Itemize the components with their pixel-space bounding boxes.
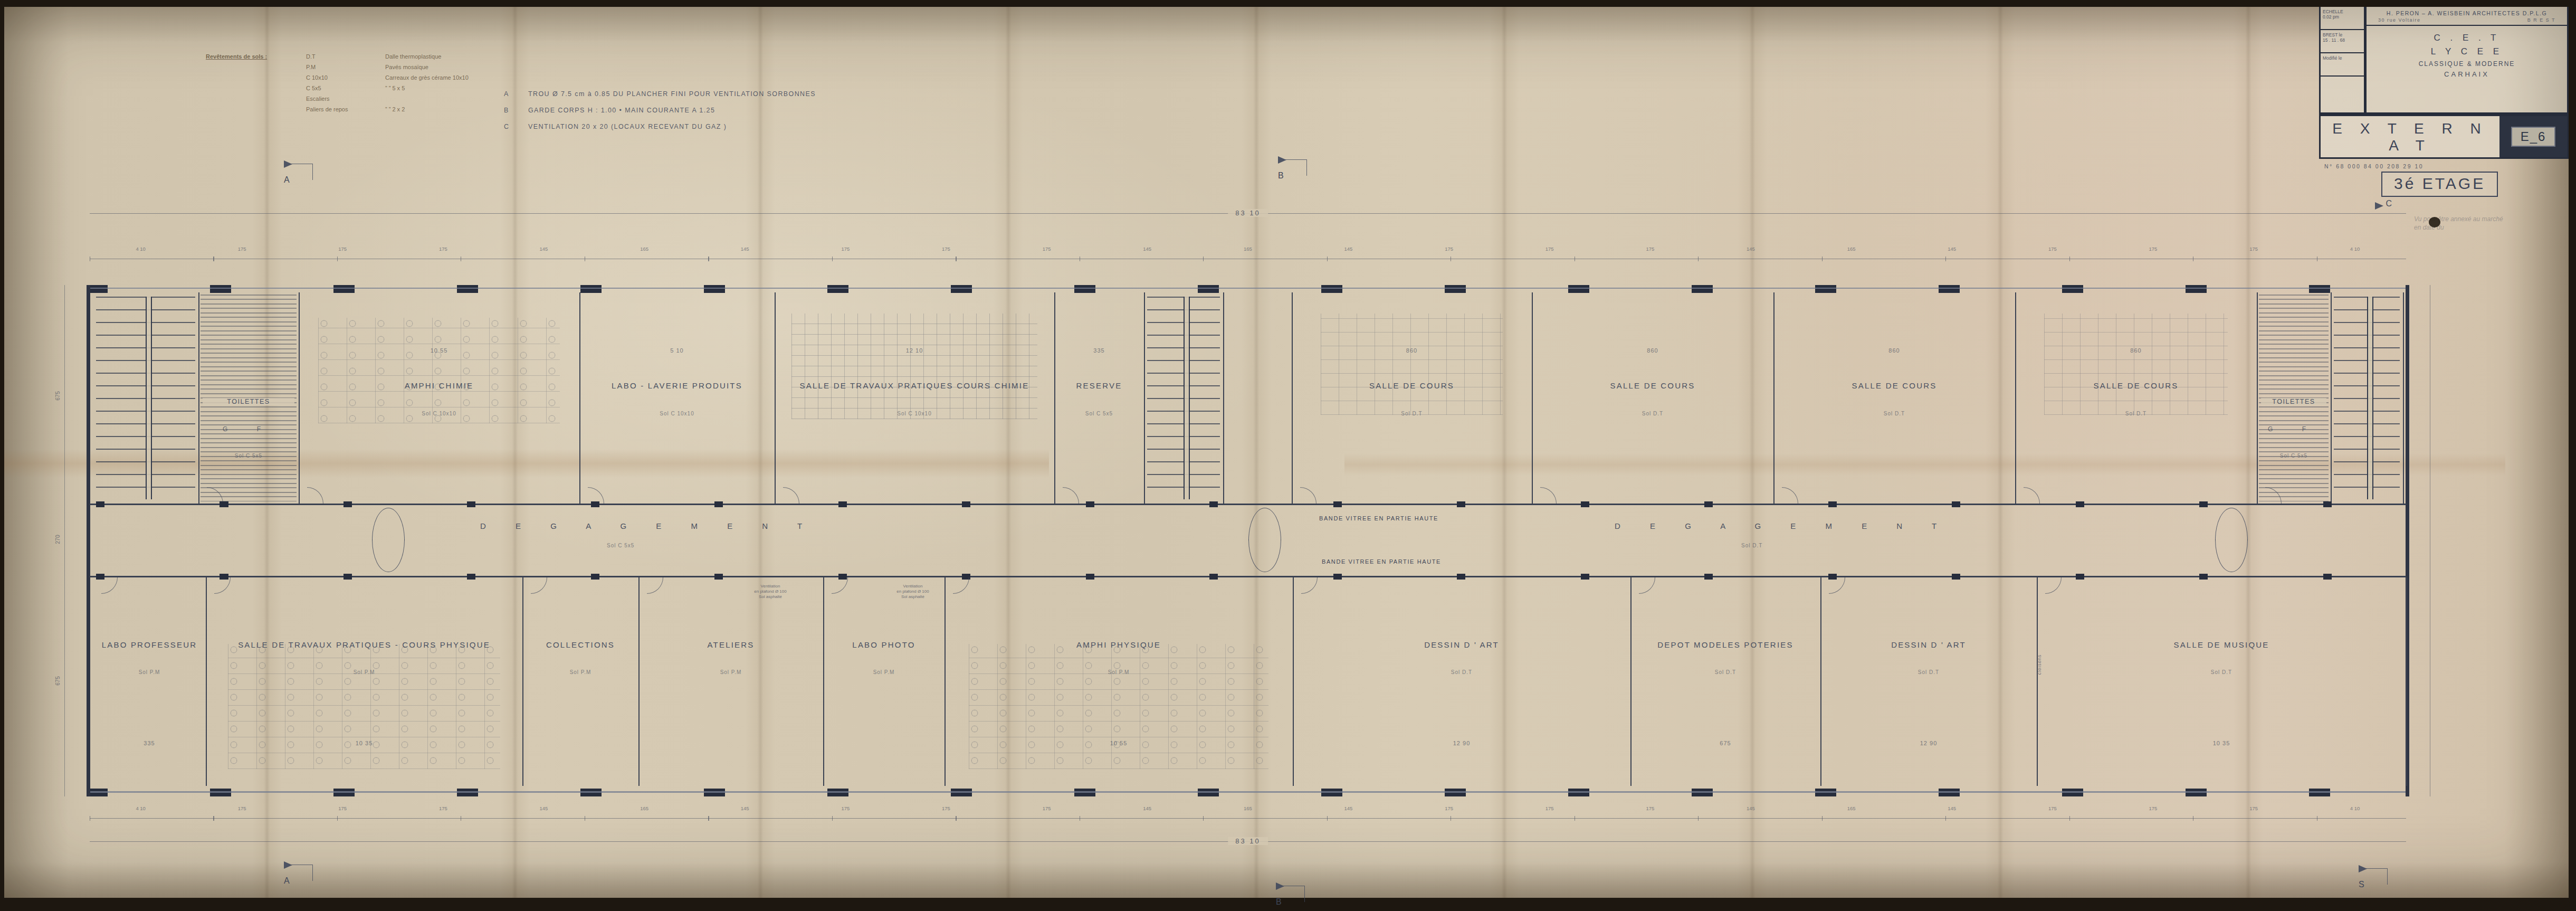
room-ateliers: ATELIERSSol P.M [638,577,824,786]
corridor-floor-finish: Sol D.T [1741,543,1762,548]
note-key: B [504,107,528,114]
ventilation-note: Ventilationen plafond Ø 100Sol asphalté [739,584,802,600]
ventilation-note: Ventilationen plafond Ø 100Sol asphalté [881,584,944,600]
floor-finish-label: Sol P.M [93,669,206,675]
legend-code: C 10x10 [306,72,385,83]
room-label: SALLE DE MUSIQUE [2037,640,2406,649]
double-door-symbol [372,508,405,572]
dimension-number: 165 [1244,246,1252,252]
legend-title-cell [206,62,306,72]
room-dimension: 860 [2015,347,2257,354]
note-key: C [504,123,528,130]
drawing-code-box: E_6 [2499,116,2567,157]
corridor-columns [90,501,2406,507]
document-name-row: E X T E R N A T E_6 [2319,114,2569,159]
north-room-band: TOILETTESG FSol C 5x510 55AMPHI CHIMIESo… [90,292,2406,504]
legend-title-cell [206,83,306,93]
staircase-symbol [96,297,195,499]
overall-dimension-value: 83 10 [1228,837,1268,845]
corridor-label-east: D E G A G E M E N T [1615,521,1950,530]
dimension-number: 165 [640,805,648,811]
floor-finish-label: Sol D.T [1532,411,1773,416]
photo-of-architectural-drawing: Revêtements de sols :D.TDalle thermoplas… [0,0,2576,911]
project-line: CARHAIX [2367,69,2567,80]
dimension-number: 145 [1948,246,1956,252]
project-line: C . E . T [2367,31,2567,45]
dimension-number: 175 [841,246,850,252]
room-label: AMPHI PHYSIQUE [944,640,1293,649]
room-label: SALLE DE COURS [1292,381,1532,390]
exterior-wall-north [87,285,2409,293]
section-marker-s: S [2359,865,2390,889]
dimension-number: 145 [741,805,749,811]
double-door-symbol [2215,508,2248,572]
room-dimension: 10 55 [944,740,1293,746]
room-label: DEPOT MODELES POTERIES [1630,640,1820,649]
staircase-symbol [2334,297,2400,499]
room-amphi-physique: 10 55AMPHI PHYSIQUESol P.M [944,577,1294,786]
dimension-number: 175 [1043,246,1051,252]
room-label: ATELIERS [638,640,823,649]
room-labo-professeur: 335LABO PROFESSEURSol P.M [93,577,207,786]
dimension-number: 145 [1143,246,1151,252]
room-labo-photo: LABO PHOTOSol P.M [823,577,946,786]
dimension-number: 175 [238,246,246,252]
project-line: L Y C E E [2367,45,2567,59]
room-dimension: 10 35 [206,740,522,746]
room-dimension: 675 [1630,740,1820,746]
project-title: C . E . T L Y C E E CLASSIQUE & MODERNE … [2367,26,2567,86]
modified-label: Modifié le [2323,55,2362,61]
room-dimension: 10 35 [2037,740,2406,746]
dimension-number: 175 [1545,246,1554,252]
room-salle-de-cours: 860SALLE DE COURSSol D.T [1532,292,1774,504]
dimension-number: 4 10 [136,805,146,811]
dimension-number: 175 [439,246,447,252]
dimension-number: 175 [942,805,950,811]
legend-code: P.M [306,62,385,72]
double-door-symbol [1248,508,1281,572]
dimension-number: 175 [841,805,850,811]
furniture-symbols [969,644,1268,769]
floor-finish-label: Sol D.T [1292,411,1532,416]
dimension-number: 4 10 [2350,246,2360,252]
note-text: TROU Ø 7.5 cm à 0.85 DU PLANCHER FINI PO… [528,90,816,98]
room-label: SALLE DE COURS [1773,381,2015,390]
date-label: BREST le [2323,32,2362,37]
dimension-number: 165 [1847,805,1856,811]
dimension-number: 175 [1445,246,1453,252]
room-dimension: 10 55 [299,347,579,354]
date-cell: BREST le 15 . 11 . 68 [2321,30,2364,53]
room-label: RESERVE [1054,381,1144,390]
dimension-number: 175 [942,246,950,252]
room-label: SALLE DE TRAVAUX PRATIQUES - COURS PHYSI… [206,640,522,649]
note-key: A [504,90,528,98]
dimension-number: 165 [1244,805,1252,811]
dimension-number: 175 [1646,246,1654,252]
glazed-band-note: BANDE VITREE EN PARTIE HAUTE [1319,515,1438,521]
room-label: AMPHI CHIMIE [299,381,579,390]
room-label: SALLE DE COURS [2015,381,2257,390]
floor-finish-label: Sol C 5x5 [198,453,299,459]
room-toilettes: TOILETTESG FSol C 5x5 [2257,292,2332,504]
note-text: VENTILATION 20 x 20 (LOCAUX RECEVANT DU … [528,123,727,130]
floor-finish-label: Sol P.M [522,669,638,675]
note-b: BGARDE CORPS H : 1.00 • MAIN COURANTE A … [504,107,816,114]
dimension-number: 175 [238,805,246,811]
dimension-number: 165 [640,246,648,252]
document-name: E X T E R N A T [2321,116,2499,157]
dimension-number: 145 [540,805,548,811]
vertical-dimension: 675 [54,391,61,401]
room-dimension: 12 10 [775,347,1054,354]
room-dimension: 5 10 [579,347,775,354]
room-amphi-chimie: 10 55AMPHI CHIMIESol C 10x10 [299,292,580,504]
legend-code: Paliers de repos [306,104,385,115]
empty-cell [2321,77,2364,112]
floor-finish-label: Sol D.T [1293,669,1630,675]
legend-code: Escaliers [306,93,385,104]
south-room-band: 335LABO PROFESSEURSol P.M10 35SALLE DE T… [90,577,2406,786]
vertical-dimension-chain [2430,285,2430,796]
room-label: SALLE DE COURS [1532,381,1773,390]
partition-label: cloisons [2037,654,2042,675]
room-hall [1223,292,1293,504]
architects-row: H. PERON – A. WEISBEIN ARCHITECTES D.P.L… [2367,7,2567,26]
legend-title-cell: Revêtements de sols : [206,51,306,62]
room-stairs [1144,292,1224,504]
legend-code: D.T [306,51,385,62]
room-label: SALLE DE TRAVAUX PRATIQUES COURS CHIMIE [775,381,1054,390]
architects-address: 30 rue Voltaire [2378,17,2421,23]
room-label: TOILETTES [2261,398,2326,405]
dimension-number: 175 [2048,805,2057,811]
dimension-number: 145 [1344,246,1353,252]
legend-desc: Dalle thermoplastique [385,51,607,62]
floor-finish-label: Sol P.M [944,669,1293,675]
section-marker-b: B [1278,156,1310,181]
exterior-wall-south [87,789,2409,796]
dimension-number: 145 [1143,805,1151,811]
room-dimension: 12 90 [1293,740,1630,746]
legend-row: Revêtements de sols :D.TDalle thermoplas… [206,51,607,62]
title-block-main: H. PERON – A. WEISBEIN ARCHITECTES D.P.L… [2367,7,2567,112]
floor-finish-label: Sol C 5x5 [2257,453,2331,459]
corridor: D E G A G E M E N T Sol C 5x5 D E G A G … [90,504,2406,577]
scale-cell: ECHELLE 0.02 pm [2321,7,2364,30]
room-collections: COLLECTIONSSol P.M [522,577,640,786]
room-salle-de-travaux-pratiques-cours-chimie: 12 10SALLE DE TRAVAUX PRATIQUES COURS CH… [775,292,1055,504]
room-salle-de-cours: 860SALLE DE COURSSol D.T [1773,292,2016,504]
floor-finish-label: Sol D.T [2015,411,2257,416]
section-leader-line [1283,886,1305,902]
furniture-symbols [1321,314,1503,415]
room-dessin-d-art: 12 90DESSIN D ' ARTSol D.T [1293,577,1632,786]
legend-code: C 5x5 [306,83,385,93]
room-stairs [2331,292,2404,504]
room-label: DESSIN D ' ART [1820,640,2037,649]
overall-dimension-bottom: 83 10 [90,841,2406,842]
title-block: ECHELLE 0.02 pm BREST le 15 . 11 . 68 Mo… [2319,7,2569,232]
room-sublabel: G F [198,425,299,433]
room-dimension: 335 [93,740,206,746]
legend-title-cell [206,72,306,83]
floor-finish-label: Sol C 10x10 [775,411,1054,416]
general-notes: ATROU Ø 7.5 cm à 0.85 DU PLANCHER FINI P… [504,90,816,139]
project-line: CLASSIQUE & MODERNE [2367,59,2567,69]
corridor-label-west: D E G A G E M E N T [480,521,816,530]
title-block-grid: ECHELLE 0.02 pm BREST le 15 . 11 . 68 Mo… [2319,7,2569,114]
floor-finish-label: Sol D.T [1820,669,2037,675]
glazed-band-note: BANDE VITREE EN PARTIE HAUTE [1322,558,1441,565]
section-leader-line [1285,159,1307,176]
floor-finish-label: Sol P.M [638,669,823,675]
punch-hole [2429,217,2440,227]
floor-finish-label: Sol P.M [823,669,944,675]
dimension-number: 4 10 [2350,805,2360,811]
reference-number: N° 68 000 84 00 208 29 10 [2324,163,2569,169]
room-label: COLLECTIONS [522,640,638,649]
dimension-number: 175 [1043,805,1051,811]
dimension-number: 175 [2149,246,2158,252]
dimension-number: 145 [1747,246,1755,252]
room-stairs [93,292,199,504]
room-label: LABO PROFESSEUR [93,640,206,649]
corridor-floor-finish: Sol C 5x5 [607,543,634,548]
dimension-number: 175 [1545,805,1554,811]
dimension-number: 145 [1948,805,1956,811]
drawing-code: E_6 [2511,127,2556,147]
dimension-ticks-bottom: 4 10175175175145165145175175175145165145… [90,805,2406,811]
dimension-chain-bottom [90,816,2406,821]
floor-finish-label: Sol C 10x10 [579,411,775,416]
section-flag-icon [2375,202,2383,210]
furniture-symbols [318,318,560,423]
floor-finish-label: Sol P.M [206,669,522,675]
room-label: LABO - LAVERIE PRODUITS [579,381,775,390]
floor-title: 3é ETAGE [2381,172,2498,197]
floor-finish-label: Sol D.T [1773,411,2015,416]
overall-dimension-value: 83 10 [1228,209,1268,217]
room-dimension: 860 [1532,347,1773,354]
staircase-symbol [1147,297,1220,499]
dimension-number: 175 [1646,805,1654,811]
dimension-number: 175 [2249,246,2258,252]
overall-dimension-top: 83 10 [90,213,2406,214]
furniture-symbols [791,314,1037,419]
modified-cell: Modifié le [2321,53,2364,77]
date-value: 15 . 11 . 68 [2323,37,2362,43]
room-depot-modeles-poteries: 675DEPOT MODELES POTERIESSol D.T [1630,577,1821,786]
vertical-dimension-chain [64,285,65,796]
room-dessin-d-art: 12 90DESSIN D ' ARTSol D.T [1820,577,2038,786]
room-dimension: 860 [1773,347,2015,354]
dimension-number: 145 [1747,805,1755,811]
dimension-number: 4 10 [136,246,146,252]
room-sublabel: G F [2257,425,2331,433]
dimension-chain-top [90,257,2406,261]
vertical-dimension: 675 [54,676,61,686]
section-leader-line [291,164,313,180]
dimension-number: 175 [2249,805,2258,811]
note-a: ATROU Ø 7.5 cm à 0.85 DU PLANCHER FINI P… [504,90,816,98]
floor-finish-label: Sol D.T [1630,669,1820,675]
dimension-number: 145 [741,246,749,252]
legend-desc: Pavés mosaïque [385,62,607,72]
floor-finish-label: Sol D.T [2037,669,2406,675]
legend-desc: Carreaux de grès cérame 10x10 [385,72,607,83]
scale-value: 0.02 pm [2323,14,2362,20]
legend-title-cell [206,93,306,104]
room-salle-de-musique: 10 35SALLE DE MUSIQUESol D.T [2037,577,2407,786]
section-marker-a: A [284,160,316,185]
room-dimension: 335 [1054,347,1144,354]
floor-plan: 83 10 4 10175175175145165145175175175145… [90,292,2406,791]
furniture-symbols [2044,314,2228,415]
section-marker-c: C [2375,199,2569,212]
architects-city: B R E S T [2527,17,2555,23]
dimension-number: 175 [2149,805,2158,811]
legend-title-cell [206,104,306,115]
dimension-number: 175 [338,246,347,252]
dimension-number: 175 [439,805,447,811]
room-reserve: 335RESERVESol C 5x5 [1054,292,1145,504]
dimension-number: 145 [540,246,548,252]
room-dimension: 12 90 [1820,740,2037,746]
floor-finish-label: Sol C 5x5 [1054,411,1144,416]
room-salle-de-cours: 860SALLE DE COURSSol D.T [1292,292,1533,504]
room-labo-laverie-produits: 5 10LABO - LAVERIE PRODUITSSol C 10x10 [579,292,776,504]
room-toilettes: TOILETTESG FSol C 5x5 [198,292,300,504]
dimension-number: 175 [338,805,347,811]
title-block-meta-column: ECHELLE 0.02 pm BREST le 15 . 11 . 68 Mo… [2321,7,2367,112]
dimension-number: 175 [1445,805,1453,811]
architects-names: H. PERON – A. WEISBEIN ARCHITECTES D.P.L… [2371,10,2563,16]
room-label: TOILETTES [203,398,294,405]
dimension-number: 165 [1847,246,1856,252]
vertical-dimension: 270 [54,535,61,544]
room-salle-de-cours: 860SALLE DE COURSSol D.T [2015,292,2258,504]
floor-finish-label: Sol C 10x10 [299,411,579,416]
room-dimension: 860 [1292,347,1532,354]
section-leader-line [2366,868,2388,885]
section-letter: C [2386,199,2392,208]
section-marker-a: A [284,861,316,886]
dimension-ticks-top: 4 10175175175145165145175175175145165145… [90,246,2406,252]
furniture-symbols [228,644,500,769]
section-leader-line [291,865,313,881]
note-c: CVENTILATION 20 x 20 (LOCAUX RECEVANT DU… [504,123,816,130]
room-label: DESSIN D ' ART [1293,640,1630,649]
legend-row: C 10x10Carreaux de grès cérame 10x10 [206,72,607,83]
dimension-number: 145 [1344,805,1353,811]
room-label: LABO PHOTO [823,640,944,649]
legend-row: P.MPavés mosaïque [206,62,607,72]
note-text: GARDE CORPS H : 1.00 • MAIN COURANTE A 1… [528,107,715,114]
section-marker-b: B [1276,882,1308,907]
drawing-sheet: Revêtements de sols :D.TDalle thermoplas… [4,7,2569,898]
room-salle-de-travaux-pratiques-cours-physique: 10 35SALLE DE TRAVAUX PRATIQUES - COURS … [206,577,523,786]
scale-label: ECHELLE [2323,9,2362,14]
dimension-number: 175 [2048,246,2057,252]
